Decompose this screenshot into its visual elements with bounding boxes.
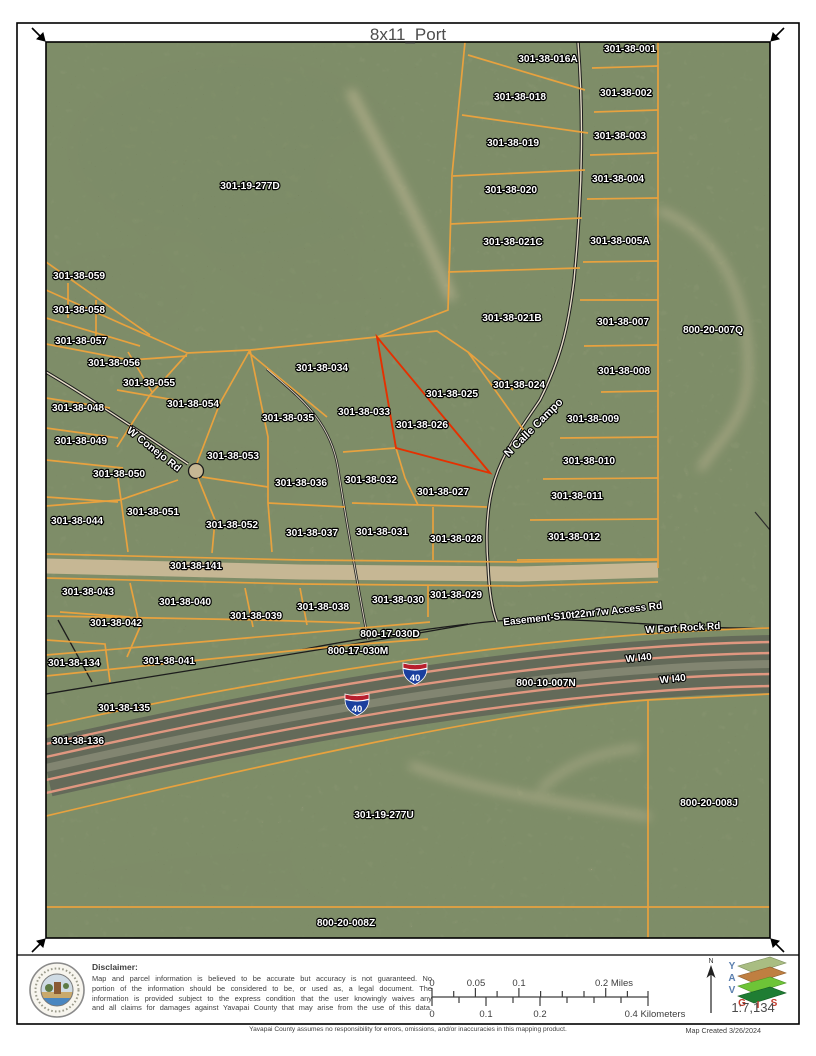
parcel-label-301-38-028: 301-38-028 (430, 534, 482, 545)
parcel-label-800-20-008j: 800-20-008J (680, 798, 738, 809)
parcel-label-301-38-041: 301-38-041 (143, 656, 195, 667)
parcel-label-301-38-029: 301-38-029 (430, 590, 482, 601)
parcel-label-301-38-050: 301-38-050 (93, 469, 145, 480)
parcel-label-301-38-011: 301-38-011 (551, 491, 603, 502)
parcel-label-301-38-043: 301-38-043 (62, 587, 114, 598)
parcel-label-301-38-031: 301-38-031 (356, 527, 408, 538)
scale-ticks-miles (432, 988, 648, 997)
parcel-label-301-38-008: 301-38-008 (598, 366, 650, 377)
corner-arrow-icon (771, 939, 784, 952)
parcel-label-301-38-002: 301-38-002 (600, 88, 652, 99)
disclaimer-line: and all claims for damages against Yavap… (92, 1003, 432, 1013)
parcel-label-301-38-012: 301-38-012 (548, 532, 600, 543)
scale-label-0.4-kilometers: 0.4 Kilometers (625, 1009, 686, 1020)
parcel-label-301-38-019: 301-38-019 (487, 138, 539, 149)
parcel-label-301-38-052: 301-38-052 (206, 520, 258, 531)
aerial-imagery: 40 40 W Conejo RdN Calle CampoEasement-S… (25, 42, 795, 938)
scale-label-0.1: 0.1 (479, 1009, 492, 1020)
map-document-page: 40 40 W Conejo RdN Calle CampoEasement-S… (0, 0, 816, 1056)
parcel-label-800-17-030m: 800-17-030M (328, 646, 389, 657)
north-arrow: N (707, 958, 716, 1013)
parcel-label-800-10-007n: 800-10-007N (516, 678, 575, 689)
parcel-label-301-38-030: 301-38-030 (372, 595, 424, 606)
scale-label-0.1: 0.1 (512, 978, 525, 989)
parcel-label-301-38-057: 301-38-057 (55, 336, 107, 347)
scale-ticks-km (432, 997, 648, 1006)
parcel-label-301-38-027: 301-38-027 (417, 487, 469, 498)
yavapai-county-seal (30, 963, 84, 1017)
parcel-label-301-38-039: 301-38-039 (230, 611, 282, 622)
parcel-label-301-38-037: 301-38-037 (286, 528, 338, 539)
scale-label-0.2-miles: 0.2 Miles (595, 978, 633, 989)
parcel-label-301-38-024: 301-38-024 (493, 380, 545, 391)
logo-letter: Y (729, 961, 736, 972)
parcel-label-301-38-016a: 301-38-016A (518, 54, 578, 65)
disclaimer-block: Disclaimer: Map and parcel information i… (92, 962, 432, 1013)
parcel-label-301-38-035: 301-38-035 (262, 413, 314, 424)
parcel-label-301-38-033: 301-38-033 (338, 407, 390, 418)
parcel-label-301-38-048: 301-38-048 (52, 403, 104, 414)
parcel-label-301-38-034: 301-38-034 (296, 363, 348, 374)
parcel-label-301-38-058: 301-38-058 (53, 305, 105, 316)
parcel-label-301-38-134: 301-38-134 (48, 658, 100, 669)
parcel-label-301-38-018: 301-38-018 (494, 92, 546, 103)
parcel-label-800-20-008z: 800-20-008Z (317, 918, 375, 929)
parcel-label-301-19-277d: 301-19-277D (220, 181, 279, 192)
corner-arrow-icon (32, 939, 45, 952)
parcel-label-301-38-051: 301-38-051 (127, 507, 179, 518)
parcel-label-301-38-049: 301-38-049 (55, 436, 107, 447)
dirt-road-141 (46, 566, 658, 574)
parcel-label-301-38-021c: 301-38-021C (483, 237, 543, 248)
parcel-label-301-38-056: 301-38-056 (88, 358, 140, 369)
disclaimer-title: Disclaimer: (92, 962, 432, 972)
map-canvas: 40 40 W Conejo RdN Calle CampoEasement-S… (0, 0, 816, 1056)
parcel-label-301-38-032: 301-38-032 (345, 475, 397, 486)
parcel-label-301-38-001: 301-38-001 (604, 44, 656, 55)
parcel-label-301-38-009: 301-38-009 (567, 414, 619, 425)
shield-number: 40 (352, 704, 363, 715)
parcel-label-301-38-007: 301-38-007 (597, 317, 649, 328)
parcel-label-301-19-277u: 301-19-277U (354, 810, 413, 821)
parcel-label-301-38-053: 301-38-053 (207, 451, 259, 462)
scale-label-0.2: 0.2 (533, 1009, 546, 1020)
parcel-label-301-38-040: 301-38-040 (159, 597, 211, 608)
parcel-label-301-38-036: 301-38-036 (275, 478, 327, 489)
parcel-label-301-38-054: 301-38-054 (167, 399, 219, 410)
north-label: N (708, 958, 713, 965)
parcel-label-301-38-005a: 301-38-005A (590, 236, 650, 247)
scale-labels-km: 00.10.20.4 Kilometers (429, 1009, 685, 1020)
parcel-label-301-38-003: 301-38-003 (594, 131, 646, 142)
parcel-label-301-38-055: 301-38-055 (123, 378, 175, 389)
logo-letter: V (729, 985, 736, 996)
disclaimer-line: portion of the information should be con… (92, 984, 432, 994)
parcel-label-301-38-141: 301-38-141 (170, 561, 222, 572)
scale-bar (432, 988, 648, 1006)
disclaimer-line: information is provided subject to the e… (92, 994, 432, 1004)
parcel-label-301-38-135: 301-38-135 (98, 703, 150, 714)
parcel-label-301-38-021b: 301-38-021B (482, 313, 541, 324)
scale-labels-miles: 00.050.10.2 Miles (429, 978, 633, 989)
logo-letter: A (728, 973, 735, 984)
parcel-label-301-38-004: 301-38-004 (592, 174, 644, 185)
shield-number: 40 (410, 673, 421, 684)
parcel-label-301-38-026: 301-38-026 (396, 420, 448, 431)
map-created-date: Map Created 3/26/2024 (685, 1026, 761, 1035)
scale-label-0.05: 0.05 (467, 978, 486, 989)
parcel-label-301-38-042: 301-38-042 (90, 618, 142, 629)
parcel-label-800-17-030d: 800-17-030D (360, 629, 419, 640)
parcel-label-800-20-007q: 800-20-007Q (683, 325, 743, 336)
parcel-label-301-38-136: 301-38-136 (52, 736, 104, 747)
map-scale-ratio: 1:7,134 (731, 1000, 774, 1015)
parcel-label-301-38-010: 301-38-010 (563, 456, 615, 467)
parcel-label-301-38-038: 301-38-038 (297, 602, 349, 613)
page-title: 8x11_Port (17, 25, 799, 45)
parcel-label-301-38-044: 301-38-044 (51, 516, 103, 527)
parcel-label-301-38-059: 301-38-059 (53, 271, 105, 282)
disclaimer-line: Map and parcel information is believed t… (92, 974, 432, 984)
parcel-label-301-38-020: 301-38-020 (485, 185, 537, 196)
parcel-label-301-38-025: 301-38-025 (426, 389, 478, 400)
